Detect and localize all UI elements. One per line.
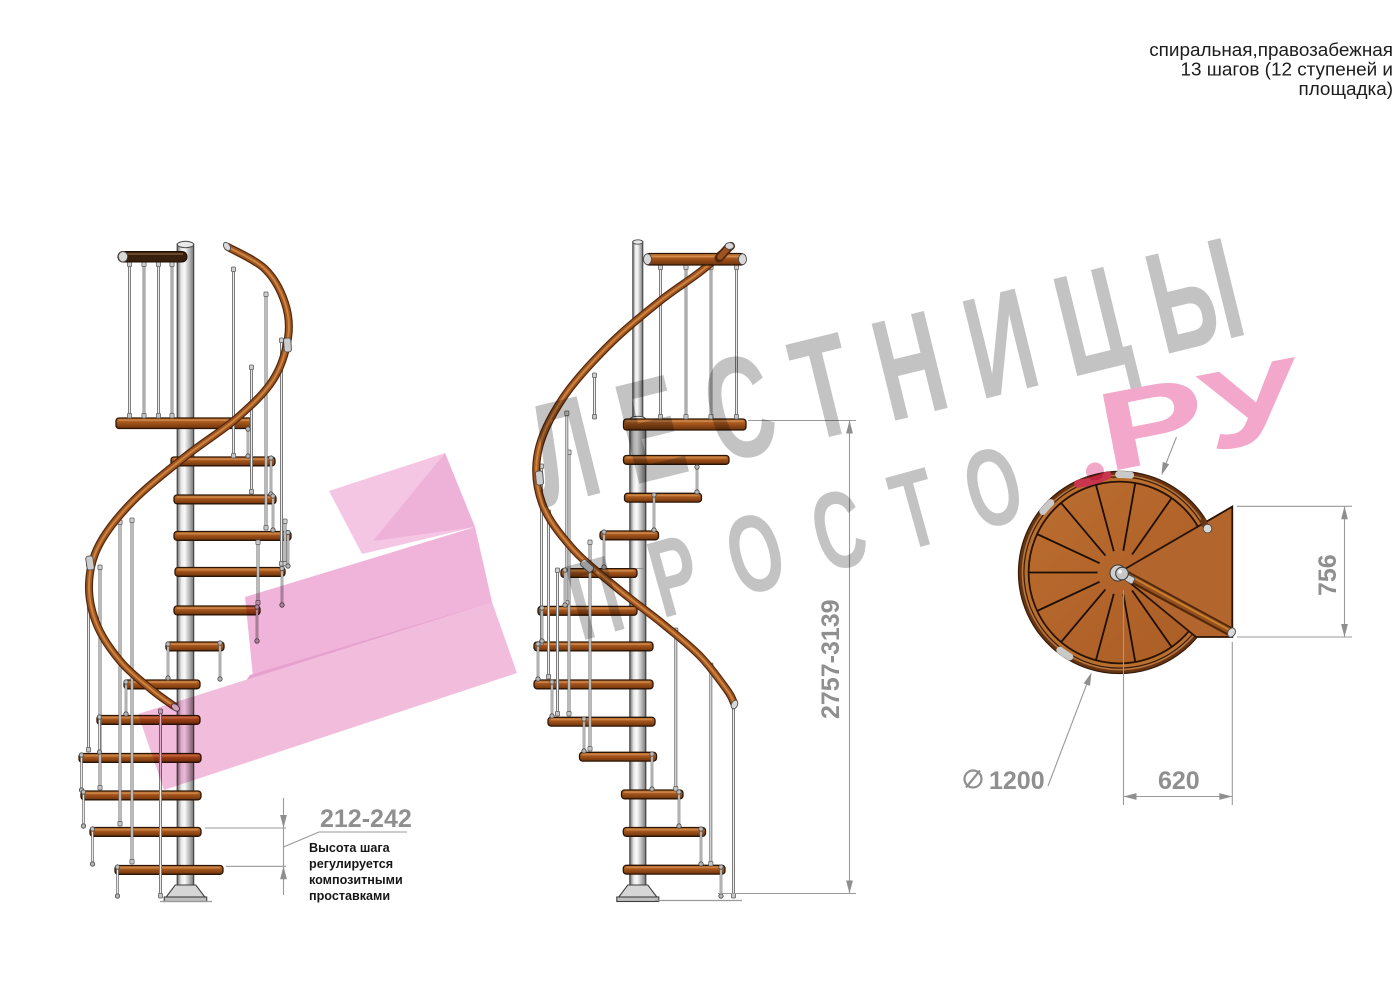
svg-text:212-242: 212-242 <box>320 805 412 833</box>
svg-text:Высота шага: Высота шага <box>309 841 391 855</box>
svg-text:спиральная,правозабежная: спиральная,правозабежная <box>1149 40 1393 61</box>
svg-text:1200: 1200 <box>989 767 1045 795</box>
svg-text:площадка): площадка) <box>1298 79 1393 100</box>
svg-text:13 шагов (12 ступеней и: 13 шагов (12 ступеней и <box>1180 60 1393 81</box>
svg-text:620: 620 <box>1158 767 1200 795</box>
svg-text:2757-3139: 2757-3139 <box>817 599 845 719</box>
svg-text:проставками: проставками <box>309 889 390 903</box>
svg-text:756: 756 <box>1314 554 1342 596</box>
svg-text:композитными: композитными <box>309 873 403 887</box>
svg-text:регулируется: регулируется <box>309 857 393 871</box>
